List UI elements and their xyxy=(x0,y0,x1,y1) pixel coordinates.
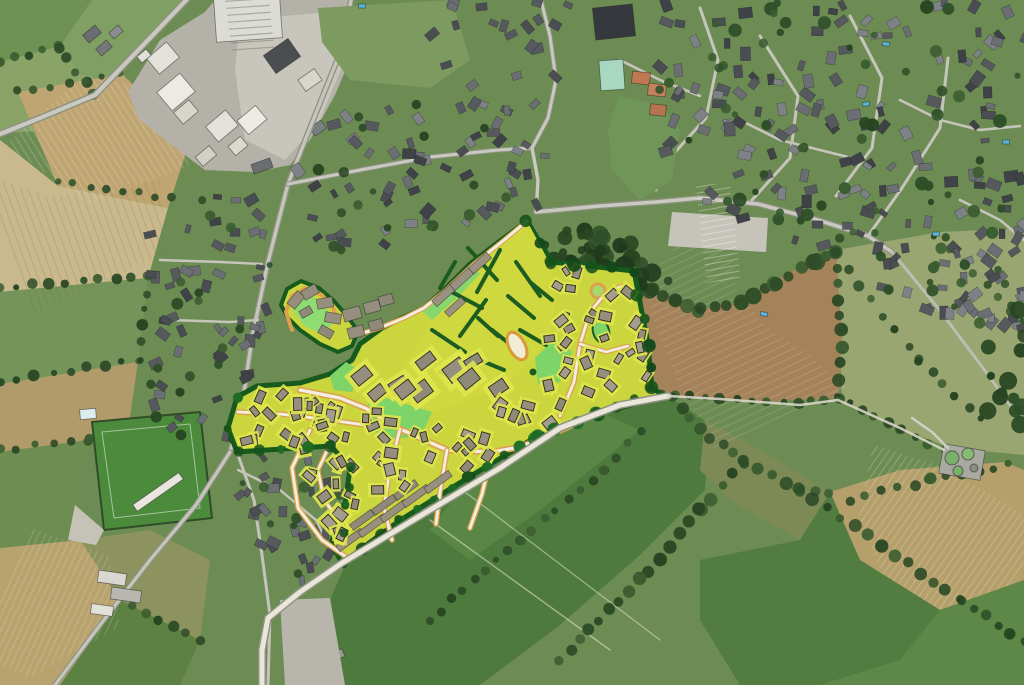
tree xyxy=(723,197,732,206)
hedgerow-tree xyxy=(721,300,732,311)
tree xyxy=(839,182,851,194)
hedgerow-tree xyxy=(27,278,38,289)
hedgerow-tree xyxy=(888,550,901,563)
hedgerow-tree xyxy=(594,617,603,626)
planned-building xyxy=(372,486,384,495)
hedgerow-tree xyxy=(119,188,126,195)
hedgerow-tree xyxy=(849,519,862,532)
house xyxy=(901,243,910,254)
tree xyxy=(267,262,273,268)
house xyxy=(755,106,762,116)
house xyxy=(724,122,735,136)
tree xyxy=(240,480,246,486)
hedgerow-tree xyxy=(970,605,978,613)
park-copse xyxy=(530,369,537,376)
hedgerow-tree xyxy=(143,291,151,299)
house xyxy=(802,195,812,207)
house xyxy=(974,182,986,189)
tree xyxy=(846,45,852,51)
tree xyxy=(776,208,784,216)
hedgerow-tree xyxy=(739,459,749,469)
house xyxy=(702,198,711,205)
hedgerow-tree xyxy=(914,568,927,581)
hedgerow-tree xyxy=(939,584,951,596)
tree xyxy=(218,343,228,353)
hedgerow-tree xyxy=(136,319,148,331)
hedgerow-tree xyxy=(783,271,793,281)
tree xyxy=(953,90,965,102)
hedgerow-tree xyxy=(135,188,142,195)
tree xyxy=(198,196,206,204)
hedgerow-tree xyxy=(567,258,581,272)
hedgerow-tree xyxy=(719,440,729,450)
tree xyxy=(967,205,980,218)
hedgerow-tree xyxy=(526,526,536,536)
tree xyxy=(235,325,244,334)
hedgerow-tree xyxy=(630,288,643,301)
house xyxy=(674,63,683,77)
treatment-tank-1 xyxy=(945,451,959,465)
hedgerow-tree xyxy=(67,368,75,376)
swimming-pools-building xyxy=(862,102,869,107)
planned-building xyxy=(543,379,554,392)
tree xyxy=(920,0,934,14)
hedgerow-tree xyxy=(102,185,110,193)
tree xyxy=(501,192,511,202)
tree xyxy=(294,569,303,578)
hedgerow-tree xyxy=(846,497,855,506)
tree xyxy=(987,372,995,380)
sports-court-teal-building xyxy=(599,59,625,91)
hedgerow-tree xyxy=(302,441,314,453)
hedgerow-tree xyxy=(458,586,467,595)
hedgerow-tree xyxy=(833,279,842,288)
hedgerow-tree xyxy=(141,608,151,618)
hedgerow-tree xyxy=(128,602,136,610)
hedgerow-tree xyxy=(893,483,901,491)
hedgerow-tree xyxy=(71,68,79,76)
hedgerow-tree xyxy=(994,293,1002,301)
tree xyxy=(419,131,428,140)
tree xyxy=(873,207,880,214)
tree xyxy=(979,402,996,419)
house xyxy=(306,562,314,573)
hedgerow-tree xyxy=(745,288,762,305)
park-copse xyxy=(530,369,537,376)
hedgerow-tree xyxy=(965,403,975,413)
tree xyxy=(801,208,814,221)
hedgerow-tree xyxy=(67,437,76,446)
hedgerow-tree xyxy=(653,553,667,567)
hedgerow-tree xyxy=(695,422,707,434)
house xyxy=(402,149,416,159)
tree xyxy=(259,482,269,492)
house xyxy=(981,138,990,143)
tree xyxy=(999,372,1017,390)
hedgerow-tree xyxy=(153,616,162,625)
house xyxy=(983,87,992,99)
hedgerow-tree xyxy=(224,425,231,432)
hedgerow-tree xyxy=(582,623,594,635)
house xyxy=(146,270,157,279)
tree xyxy=(146,380,155,389)
hedgerow-tree xyxy=(12,446,20,454)
planned-building xyxy=(384,417,397,427)
house xyxy=(976,28,982,38)
planned-building xyxy=(544,335,555,343)
hedgerow-tree xyxy=(118,358,125,365)
hedgerow-tree xyxy=(100,361,111,372)
tree xyxy=(337,246,346,255)
house xyxy=(733,65,743,78)
hedgerow-tree xyxy=(879,313,887,321)
tree xyxy=(927,279,934,286)
tree xyxy=(708,53,717,62)
hedgerow-tree xyxy=(674,527,687,540)
school-building xyxy=(592,4,635,40)
hedgerow-tree xyxy=(914,357,923,366)
tree xyxy=(353,200,363,210)
hedgerow-tree xyxy=(695,302,707,314)
tree xyxy=(595,245,606,256)
hedgerow-tree xyxy=(343,501,350,508)
hedgerow-tree xyxy=(637,427,646,436)
hedgerow-tree xyxy=(938,379,947,388)
house xyxy=(981,111,995,120)
hedgerow-tree xyxy=(575,634,585,644)
tree xyxy=(871,32,878,39)
house xyxy=(999,229,1005,239)
hedgerow-tree xyxy=(426,617,434,625)
tree xyxy=(927,285,939,297)
hedgerow-tree xyxy=(752,463,764,475)
tree xyxy=(618,243,627,252)
hedgerow-tree xyxy=(1004,628,1015,639)
hedgerow-tree xyxy=(181,628,190,637)
hedgerow-tree xyxy=(54,43,65,54)
hedgerow-tree xyxy=(69,179,76,186)
hedgerow-tree xyxy=(324,441,336,453)
tree xyxy=(816,200,826,210)
tree xyxy=(185,371,195,381)
planned-building xyxy=(293,398,302,411)
hedgerow-tree xyxy=(969,269,977,277)
hedgerow-tree xyxy=(604,604,615,615)
hedgerow-tree xyxy=(844,265,854,275)
tree xyxy=(759,39,768,48)
treatment-tank-1 xyxy=(945,451,959,465)
hedgerow-tree xyxy=(876,486,885,495)
treatment-tank-2 xyxy=(962,448,974,460)
house xyxy=(231,197,241,203)
sports-court-teal xyxy=(599,59,625,91)
hedgerow-tree xyxy=(981,610,991,620)
house xyxy=(842,222,852,230)
hedgerow-tree xyxy=(554,656,563,665)
planned-building xyxy=(307,401,312,410)
house xyxy=(540,153,549,159)
tree xyxy=(986,227,998,239)
hedgerow-tree xyxy=(46,84,53,91)
hedgerow-tree xyxy=(545,258,556,269)
hedgerow-tree xyxy=(614,597,624,607)
tree xyxy=(871,229,878,236)
house xyxy=(857,29,868,36)
clubhouse-building xyxy=(80,408,97,419)
house xyxy=(803,74,815,89)
hedgerow-tree xyxy=(780,477,793,490)
hedgerow-tree xyxy=(10,52,19,61)
house xyxy=(523,169,532,180)
house xyxy=(919,163,932,171)
hedgerow-tree xyxy=(447,594,456,603)
tree xyxy=(714,63,723,72)
hedgerow-tree xyxy=(611,453,620,462)
tennis-courts-building xyxy=(631,71,650,85)
hedgerow-tree xyxy=(13,376,21,384)
hedgerow-tree xyxy=(929,367,939,377)
tree xyxy=(931,109,943,121)
tree xyxy=(777,29,784,36)
tree xyxy=(171,298,183,310)
hedgerow-tree xyxy=(834,323,848,337)
tree xyxy=(267,520,274,527)
house xyxy=(813,6,819,16)
tree xyxy=(752,189,759,196)
house xyxy=(713,90,724,99)
tree xyxy=(313,164,324,175)
hedgerow-tree xyxy=(836,341,849,354)
hedgerow-tree xyxy=(437,607,446,616)
house xyxy=(674,19,685,28)
hedgerow-tree xyxy=(566,645,577,656)
tree xyxy=(153,364,162,373)
hedgerow-tree xyxy=(586,261,598,273)
house xyxy=(740,47,750,61)
tree xyxy=(902,68,910,76)
treatment-tank-2 xyxy=(962,448,974,460)
tree xyxy=(205,211,215,221)
tree xyxy=(664,276,673,285)
hedgerow-tree xyxy=(890,325,898,333)
tree xyxy=(685,137,692,144)
hedgerow-tree xyxy=(928,578,938,588)
aerial-masterplan-map xyxy=(0,0,1024,685)
tree xyxy=(194,288,203,297)
treatment-tank-4 xyxy=(970,464,978,472)
hedgerow-tree xyxy=(565,495,574,504)
hedgerow-tree xyxy=(50,440,58,448)
tree xyxy=(761,120,771,130)
swimming-pools-building xyxy=(882,41,890,46)
clubhouse xyxy=(80,408,97,419)
house xyxy=(846,109,861,121)
tree xyxy=(577,231,586,240)
hedgerow-tree xyxy=(633,572,647,586)
tree xyxy=(559,248,567,256)
hedgerow-tree xyxy=(824,489,833,498)
house xyxy=(812,221,823,229)
house xyxy=(279,506,287,517)
tree xyxy=(712,20,719,27)
hedgerow-tree xyxy=(278,445,284,451)
tree xyxy=(1014,73,1020,79)
hedgerow-tree xyxy=(254,444,265,455)
tree xyxy=(214,360,223,369)
tree xyxy=(942,3,954,15)
hedgerow-tree xyxy=(137,357,143,363)
hedgerow-tree xyxy=(867,295,875,303)
hedgerow-tree xyxy=(704,493,717,506)
map-canvas xyxy=(0,0,1024,685)
hedgerow-tree xyxy=(25,52,34,61)
house xyxy=(879,185,886,196)
tree xyxy=(861,59,871,69)
hedgerow-tree xyxy=(481,566,490,575)
tree xyxy=(339,167,349,177)
hedgerow-tree xyxy=(860,491,869,500)
tennis-courts-building xyxy=(649,104,666,117)
hedgerow-tree xyxy=(683,515,695,527)
hedgerow-tree xyxy=(29,86,38,95)
hedgerow-tree xyxy=(727,468,738,479)
tree xyxy=(993,114,1007,128)
hedgerow-tree xyxy=(31,440,38,447)
hedgerow-tree xyxy=(168,621,179,632)
hedgerow-tree xyxy=(685,413,694,422)
hedgerow-tree xyxy=(910,480,921,491)
tree xyxy=(464,209,475,220)
hedgerow-tree xyxy=(833,264,842,273)
hedgerow-tree xyxy=(93,274,103,284)
hedgerow-tree xyxy=(151,194,158,201)
house xyxy=(826,51,837,65)
hedgerow-tree xyxy=(645,381,659,395)
tree xyxy=(974,317,985,328)
hedgerow-tree xyxy=(710,301,721,312)
hedgerow-tree xyxy=(995,622,1003,630)
tree xyxy=(733,193,747,207)
planned-building xyxy=(333,479,339,489)
tree xyxy=(997,205,1005,213)
tree xyxy=(928,199,934,205)
hedgerow-tree xyxy=(28,370,40,382)
house xyxy=(238,317,244,326)
tree xyxy=(354,112,363,121)
hedgerow-tree xyxy=(677,402,689,414)
planned-building xyxy=(362,414,368,423)
tree xyxy=(721,103,731,113)
tree xyxy=(412,100,421,109)
hedgerow-tree xyxy=(719,481,728,490)
tree xyxy=(780,17,792,29)
hedgerow-tree xyxy=(471,575,480,584)
tree xyxy=(981,340,996,355)
house xyxy=(338,238,351,248)
hedgerow-tree xyxy=(835,311,844,320)
hedgerow-tree xyxy=(347,466,353,472)
tree xyxy=(883,285,893,295)
hedgerow-tree xyxy=(394,515,402,523)
house xyxy=(905,219,911,228)
hedgerow-tree xyxy=(990,466,997,473)
hedgerow-tree xyxy=(493,557,499,563)
hedgerow-tree xyxy=(81,361,91,371)
tree xyxy=(972,167,983,178)
hedgerow-tree xyxy=(55,178,61,184)
tree xyxy=(151,411,162,422)
tree xyxy=(176,277,185,286)
hedgerow-tree xyxy=(98,73,104,79)
hedgerow-tree xyxy=(65,79,74,88)
house xyxy=(828,8,838,15)
hedgerow-tree xyxy=(770,277,783,290)
tree xyxy=(818,16,831,29)
hedgerow-tree xyxy=(551,507,558,514)
tree xyxy=(770,9,778,17)
hedgerow-tree xyxy=(606,261,617,272)
tree xyxy=(935,242,946,253)
tree xyxy=(226,222,236,232)
house xyxy=(213,194,222,200)
tree xyxy=(942,233,950,241)
hedgerow-tree xyxy=(835,357,846,368)
hedgerow-tree xyxy=(137,337,146,346)
hedgerow-tree xyxy=(832,294,844,306)
hedgerow-tree xyxy=(704,433,715,444)
hedgerow-tree xyxy=(832,374,845,387)
hedgerow-tree xyxy=(517,536,526,545)
hedgerow-tree xyxy=(692,502,705,515)
hedgerow-tree xyxy=(767,470,777,480)
tree xyxy=(384,224,392,232)
tree xyxy=(849,228,856,235)
school-building-building xyxy=(592,4,635,40)
hedgerow-tree xyxy=(728,448,738,458)
planned-building xyxy=(384,447,398,459)
house xyxy=(738,7,753,19)
hedgerow-tree xyxy=(80,277,87,284)
hedgerow-tree xyxy=(112,274,123,285)
hedgerow-tree xyxy=(43,278,55,290)
tree xyxy=(426,223,433,230)
hedgerow-tree xyxy=(141,306,147,312)
swimming-pools-building xyxy=(933,232,940,236)
treatment-tank-3 xyxy=(953,466,963,476)
tree xyxy=(876,252,886,262)
tree xyxy=(195,297,203,305)
hedgerow-tree xyxy=(925,472,937,484)
hedgerow-tree xyxy=(81,78,89,86)
tree xyxy=(664,78,674,88)
house xyxy=(883,33,892,39)
tree xyxy=(1001,280,1009,288)
house xyxy=(487,129,500,137)
house xyxy=(724,38,730,48)
tree xyxy=(930,45,942,57)
hedgerow-tree xyxy=(903,557,913,567)
tree xyxy=(370,188,377,195)
hedgerow-tree xyxy=(234,447,240,453)
treatment-tank-4 xyxy=(970,464,978,472)
hedgerow-tree xyxy=(646,363,656,373)
hedgerow-tree xyxy=(950,392,959,401)
tree xyxy=(835,233,844,242)
house xyxy=(944,176,958,187)
hedgerow-tree xyxy=(906,343,914,351)
hedgerow-tree xyxy=(61,280,69,288)
tree xyxy=(655,85,664,94)
